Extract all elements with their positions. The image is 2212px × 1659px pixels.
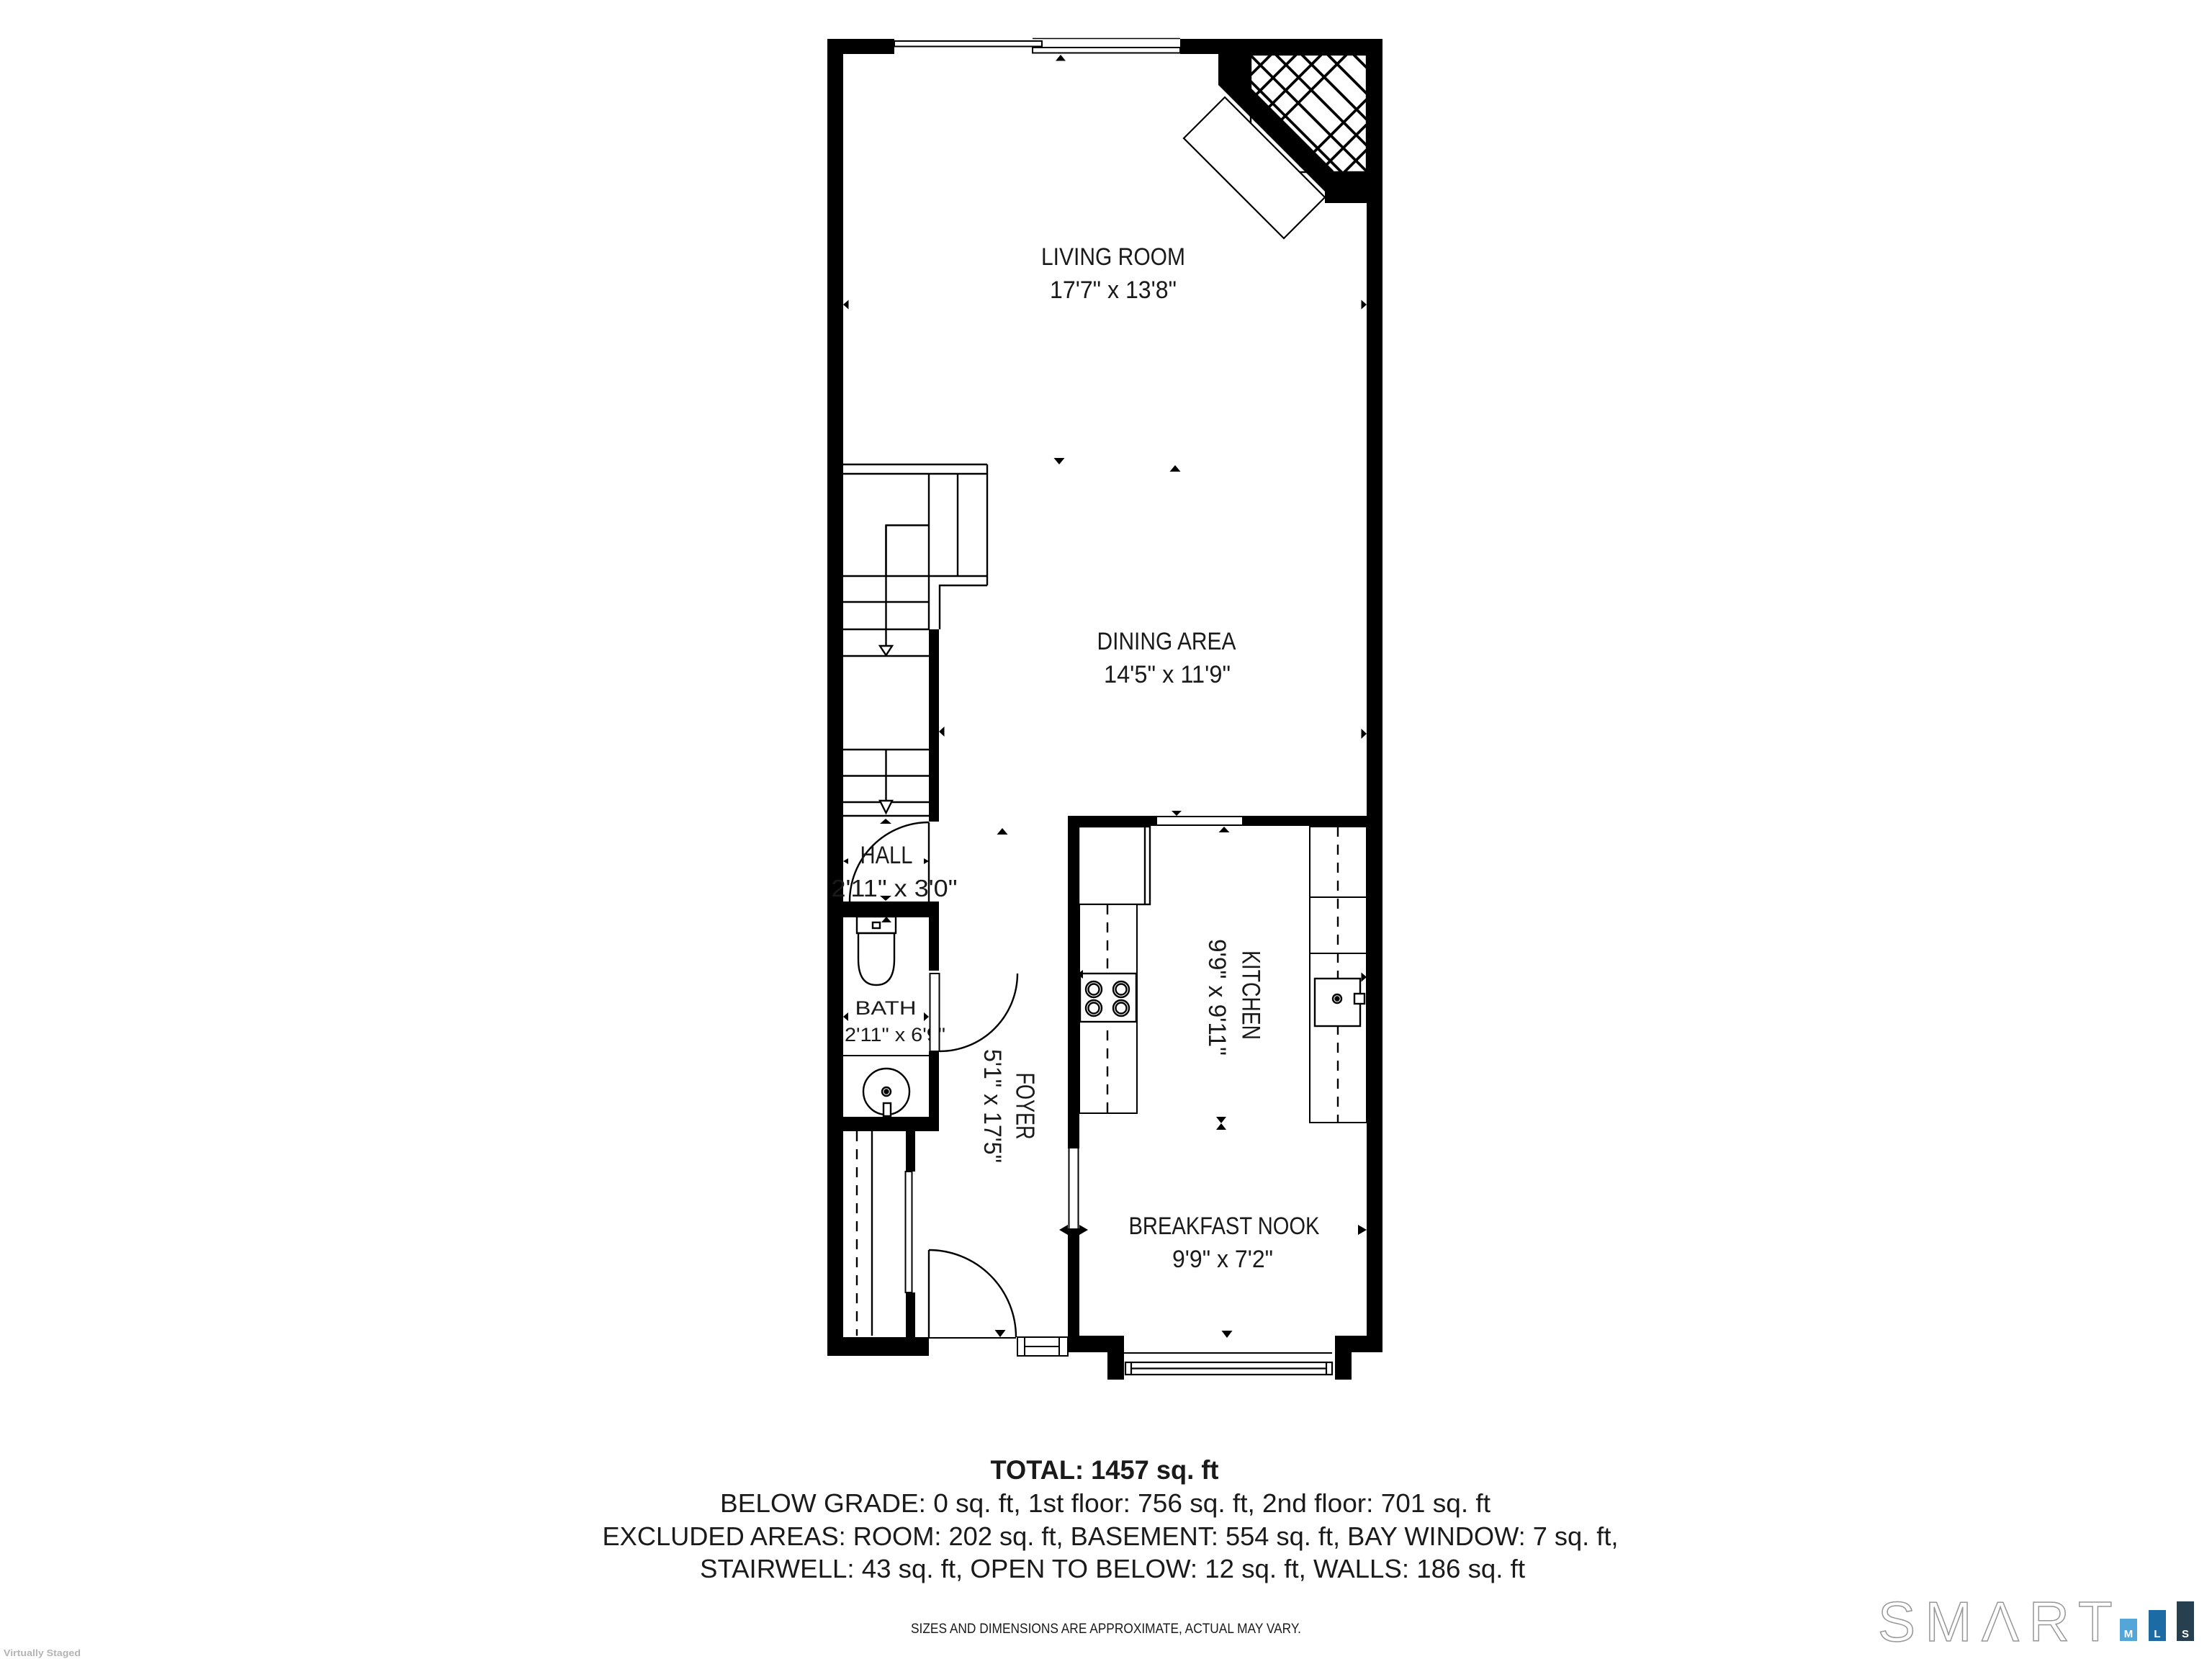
svg-text:TOTAL: 1457 sq. ft: TOTAL: 1457 sq. ft — [991, 1455, 1219, 1485]
svg-text:M: M — [2124, 1628, 2134, 1640]
svg-text:BREAKFAST NOOK: BREAKFAST NOOK — [1129, 1213, 1320, 1240]
svg-text:17'7" x 13'8": 17'7" x 13'8" — [1050, 276, 1177, 304]
svg-text:LIVING ROOM: LIVING ROOM — [1041, 243, 1185, 271]
svg-text:L: L — [2154, 1628, 2160, 1640]
svg-text:5'1" x 17'5": 5'1" x 17'5" — [979, 1049, 1006, 1163]
svg-text:BELOW GRADE: 0 sq. ft, 1st flo: BELOW GRADE: 0 sq. ft, 1st floor: 756 sq… — [720, 1488, 1491, 1518]
svg-text:9'9" x 7'2": 9'9" x 7'2" — [1172, 1246, 1273, 1273]
svg-text:S: S — [2182, 1628, 2189, 1640]
svg-text:BATH: BATH — [855, 997, 917, 1019]
svg-text:DINING AREA: DINING AREA — [1097, 628, 1236, 655]
svg-text:14'5" x 11'9": 14'5" x 11'9" — [1104, 661, 1231, 688]
svg-text:SMΛRT: SMΛRT — [1878, 1590, 2122, 1653]
svg-text:SIZES AND DIMENSIONS ARE APPRO: SIZES AND DIMENSIONS ARE APPROXIMATE, AC… — [911, 1622, 1301, 1637]
svg-text:STAIRWELL: 43 sq. ft, OPEN TO: STAIRWELL: 43 sq. ft, OPEN TO BELOW: 12 … — [700, 1554, 1525, 1583]
svg-text:2'11" x 3'0": 2'11" x 3'0" — [832, 875, 958, 902]
svg-text:Virtually Staged: Virtually Staged — [4, 1648, 81, 1658]
svg-text:FOYER: FOYER — [1011, 1073, 1040, 1140]
svg-text:9'9" x 9'11": 9'9" x 9'11" — [1203, 939, 1231, 1056]
svg-text:EXCLUDED AREAS: ROOM: 202 sq.: EXCLUDED AREAS: ROOM: 202 sq. ft, BASEME… — [603, 1521, 1619, 1551]
svg-text:HALL: HALL — [860, 842, 913, 869]
svg-text:KITCHEN: KITCHEN — [1237, 950, 1265, 1040]
